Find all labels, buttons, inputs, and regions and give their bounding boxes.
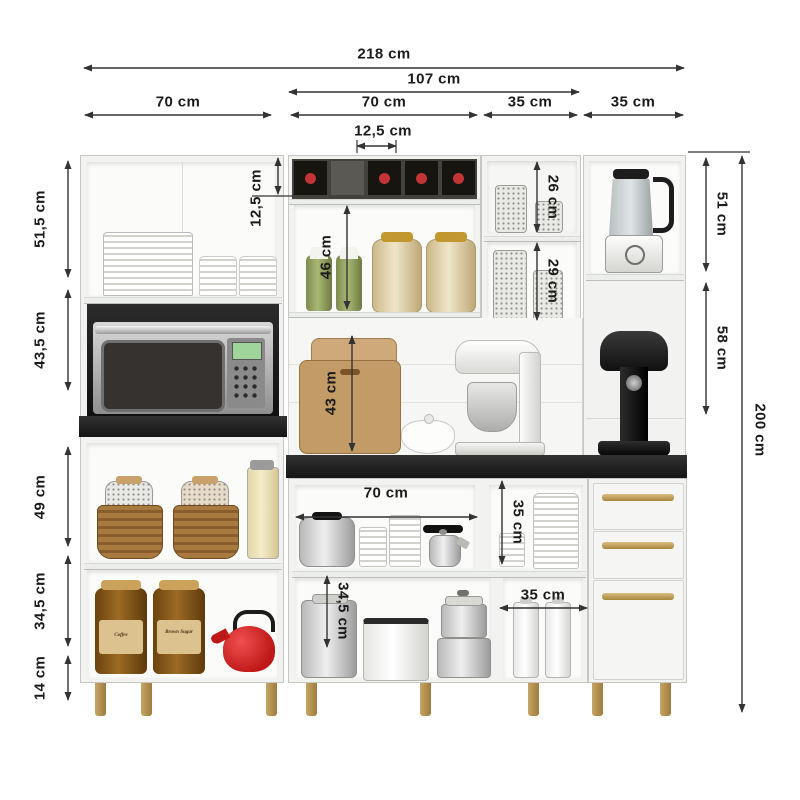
dim-label-51-r: 51 cm [714,192,731,237]
dimension-arrows [0,0,800,800]
dim-label-12-5-w: 12,5 cm [354,123,412,140]
dimension-diagram: Coffee Brown Sugar [0,0,800,800]
dim-label-12-5-h: 12,5 cm [248,169,265,227]
dim-label-29: 29 cm [545,259,562,304]
dim-label-35-a: 35 cm [508,94,553,111]
dim-label-46: 46 cm [318,235,335,280]
dim-label-49: 49 cm [32,475,49,520]
dim-label-35-base-h: 35 cm [510,500,527,545]
dim-label-51-5: 51,5 cm [32,190,49,248]
dim-label-26: 26 cm [545,175,562,220]
dim-label-35-b: 35 cm [611,94,656,111]
dim-label-107: 107 cm [407,71,460,88]
dim-label-70-mid: 70 cm [362,94,407,111]
dim-label-70-left: 70 cm [156,94,201,111]
dim-label-43-5: 43,5 cm [32,311,49,369]
dim-label-218: 218 cm [357,46,410,63]
dim-label-43: 43 cm [323,371,340,416]
dim-label-34-5-m: 34,5 cm [335,582,352,640]
dim-label-58: 58 cm [714,326,731,371]
dim-label-70-base: 70 cm [364,485,409,502]
dim-label-14: 14 cm [32,656,49,701]
dim-label-34-5-l: 34,5 cm [32,572,49,630]
dim-label-35-base-w: 35 cm [521,587,566,604]
dim-label-200: 200 cm [752,403,769,456]
